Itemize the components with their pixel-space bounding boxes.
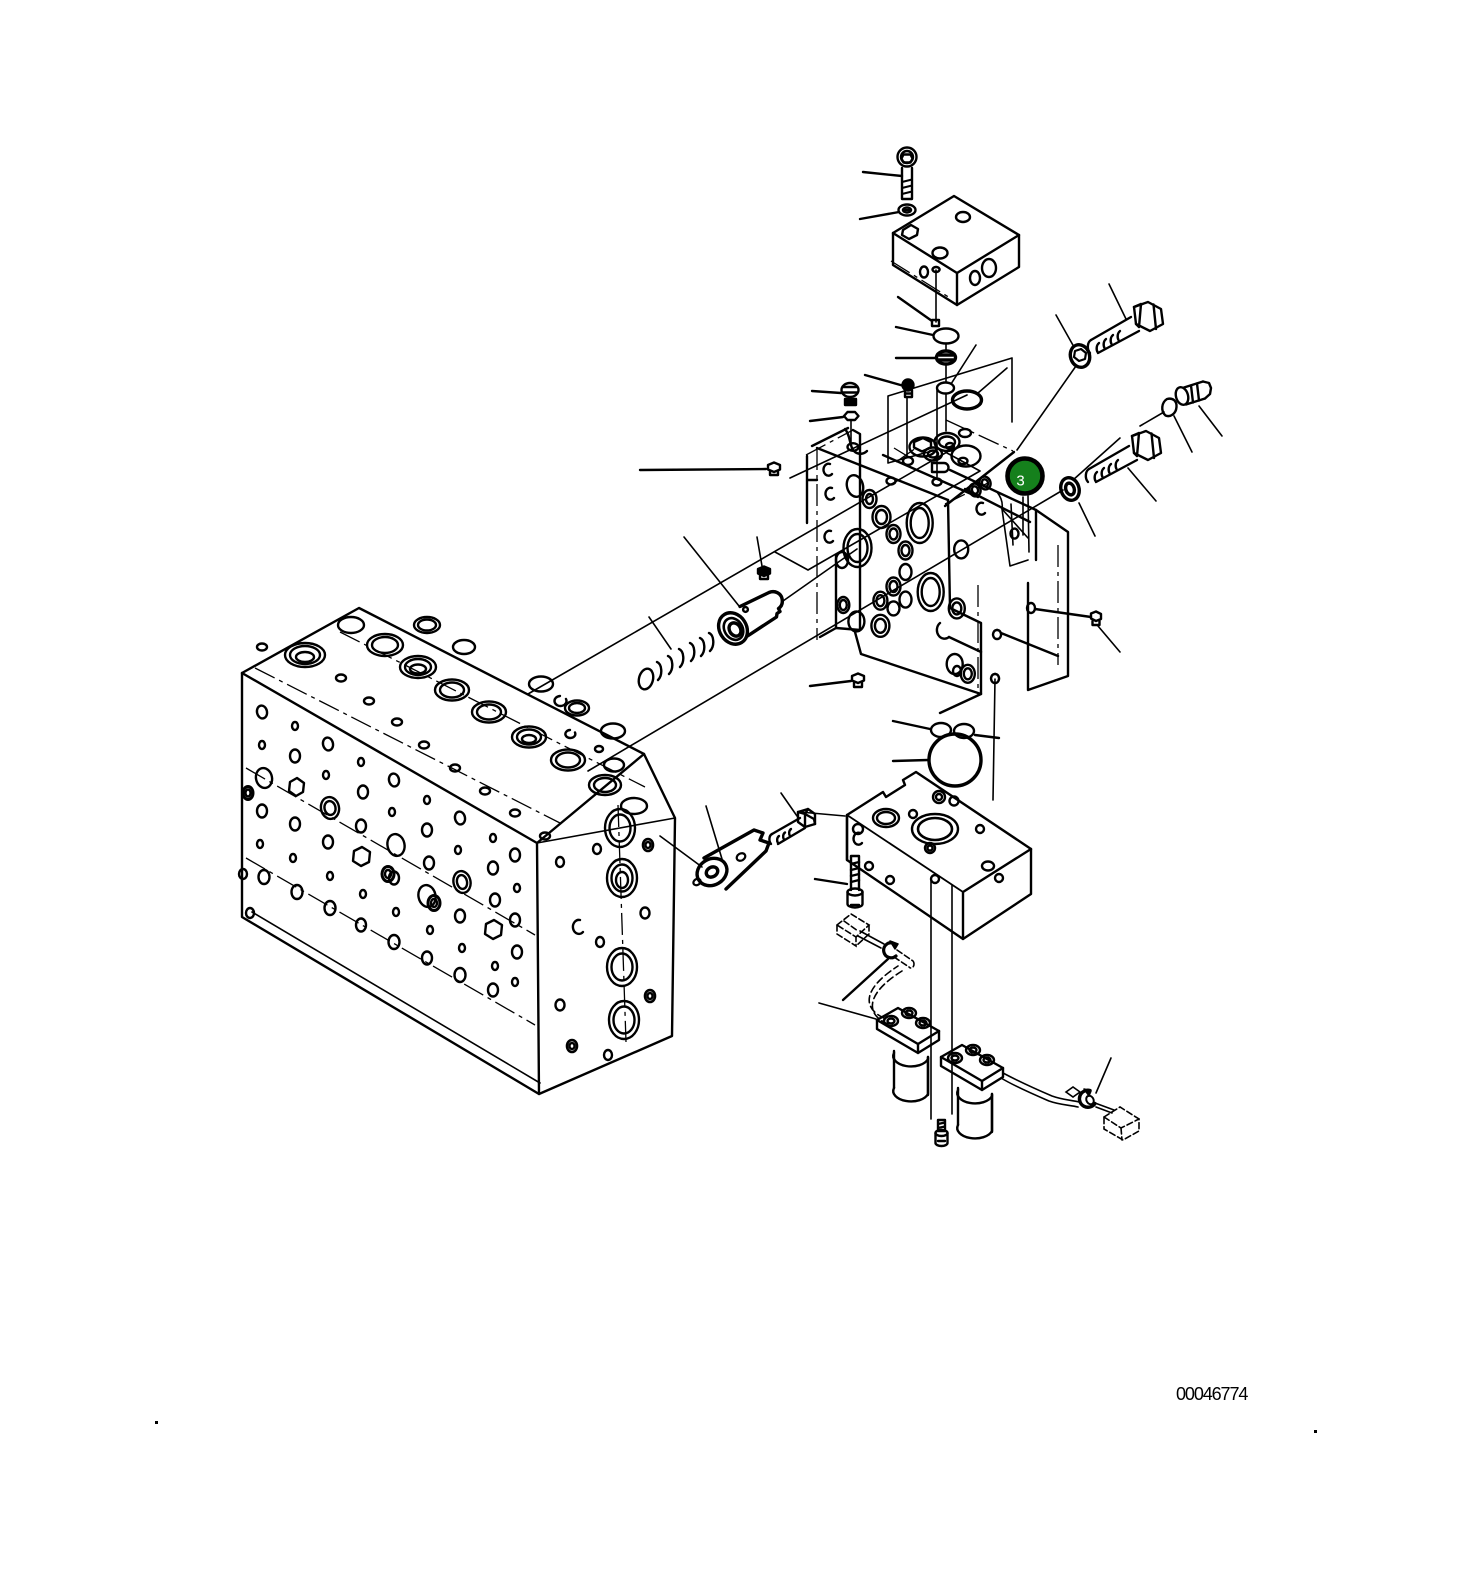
svg-text:00046774: 00046774 — [1176, 1384, 1248, 1404]
svg-text:3: 3 — [1016, 472, 1024, 489]
